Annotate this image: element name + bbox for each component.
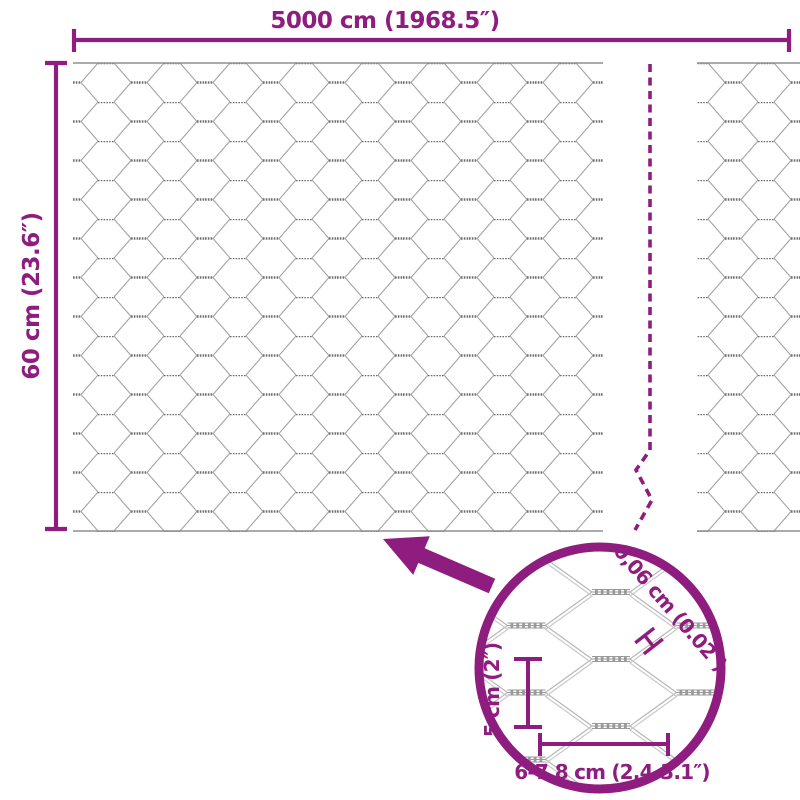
mesh-width-label: 6-7,8 cm (2.4-3.1″) (514, 760, 709, 784)
height-dimension-label: 60 cm (23.6″) (19, 212, 45, 379)
width-dimension-label: 5000 cm (1968.5″) (270, 8, 499, 34)
main-mesh-texture (73, 63, 603, 532)
dimension-diagram: 5000 cm (1968.5″) 60 cm (23.6″) (0, 0, 800, 800)
right-mesh-texture (697, 63, 800, 532)
main-mesh-panel (73, 63, 603, 532)
zoom-arrow-icon (383, 536, 495, 593)
mesh-height-label: 5 cm (2″) (480, 643, 504, 737)
diagram-canvas: 5000 cm (1968.5″) 60 cm (23.6″) (0, 0, 800, 800)
break-line (635, 64, 652, 530)
right-mesh-panel (697, 63, 800, 532)
left-height-dimension (45, 63, 67, 529)
